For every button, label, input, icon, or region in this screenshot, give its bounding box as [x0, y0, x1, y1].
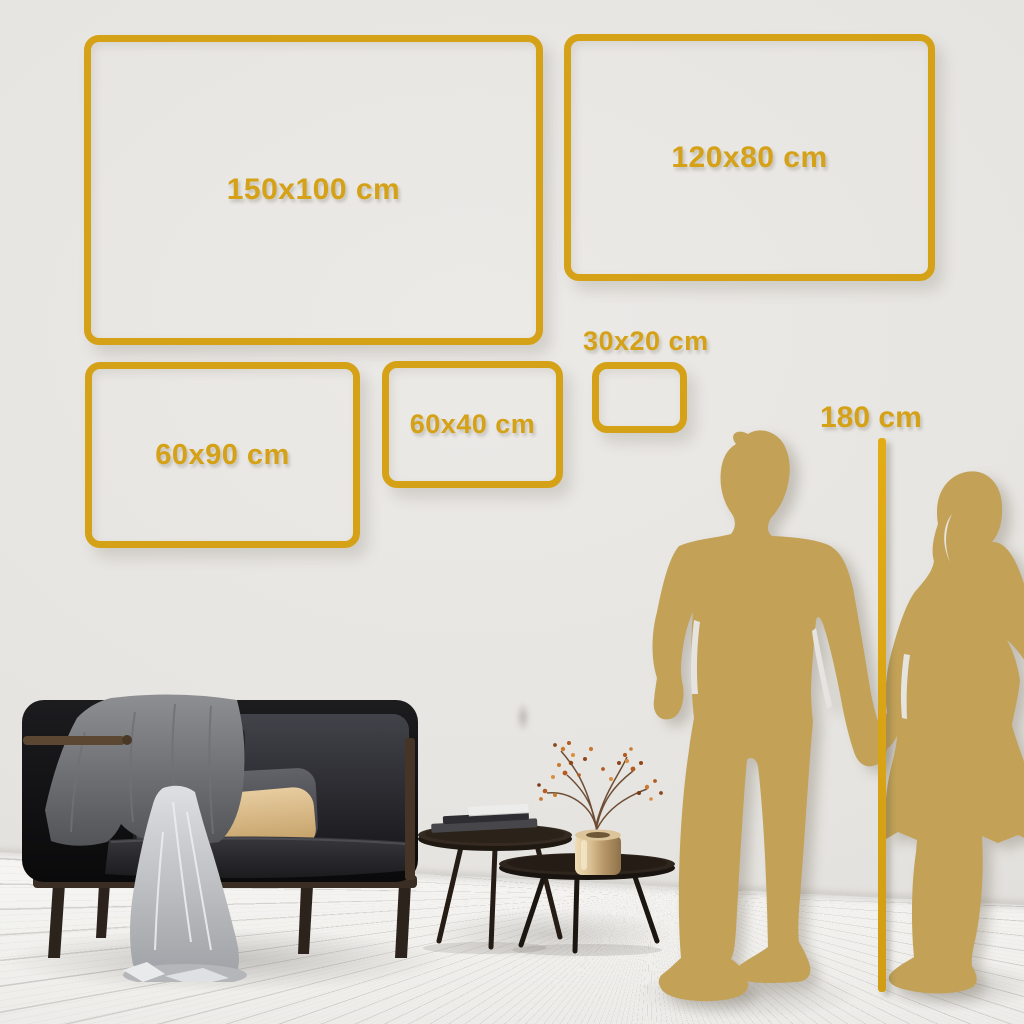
vase-highlight — [581, 840, 587, 870]
size-label-30x20: 30x20 cm — [583, 326, 709, 357]
wall-shadow-smudge — [516, 702, 530, 732]
height-reference-label: 180 cm — [820, 401, 922, 435]
height-reference-line — [878, 438, 886, 992]
frame-30x20: 30x20 cm — [592, 362, 687, 433]
couple-silhouettes — [636, 428, 1024, 1008]
arm-wood-dowel — [23, 736, 125, 745]
size-label-150x100: 150x100 cm — [227, 173, 401, 207]
dark-velvet-sofa — [15, 692, 435, 982]
dried-branch — [547, 751, 647, 835]
frame-60x40: 60x40 cm — [382, 361, 563, 488]
man-silhouette — [653, 430, 887, 1001]
size-label-60x40: 60x40 cm — [410, 409, 536, 440]
vase-mouth — [586, 832, 610, 838]
frame-60x90: 60x90 cm — [85, 362, 360, 548]
frame-150x100: 150x100 cm — [84, 35, 543, 345]
size-label-120x80: 120x80 cm — [671, 141, 827, 175]
woman-silhouette — [873, 471, 1024, 993]
frame-120x80: 120x80 cm — [564, 34, 935, 281]
right-wood-post — [405, 738, 415, 880]
size-guide-infographic: 150x100 cm 120x80 cm 60x90 cm 60x40 cm 3… — [0, 0, 1024, 1024]
size-label-60x90: 60x90 cm — [155, 439, 290, 472]
dowel-knob — [122, 735, 132, 745]
